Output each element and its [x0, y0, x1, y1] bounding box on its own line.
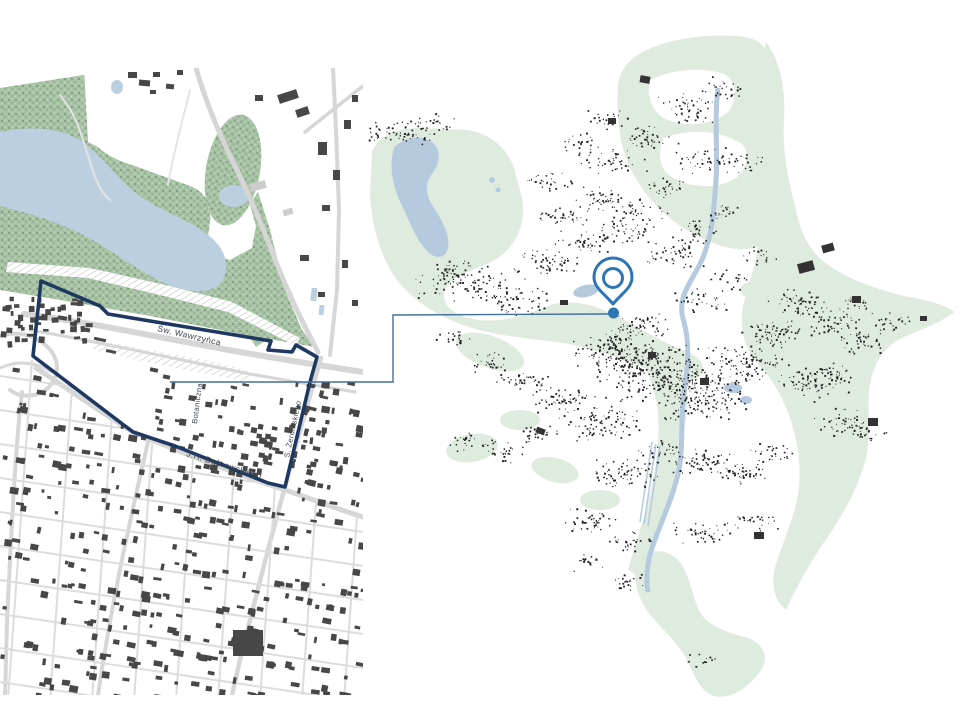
map-figure: Św. Wawrzyńca Botaniczna J.H. Dąbrowskie…: [0, 0, 960, 720]
small-pond: [111, 80, 123, 94]
green-areas: [370, 35, 954, 696]
pin-anchor-dot: [608, 308, 619, 319]
detail-map: Św. Wawrzyńca Botaniczna J.H. Dąbrowskie…: [0, 68, 369, 720]
pin-inner-circle: [604, 269, 623, 288]
city-overview-map: [369, 35, 954, 696]
slide-canvas: Św. Wawrzyńca Botaniczna J.H. Dąbrowskie…: [0, 0, 960, 720]
